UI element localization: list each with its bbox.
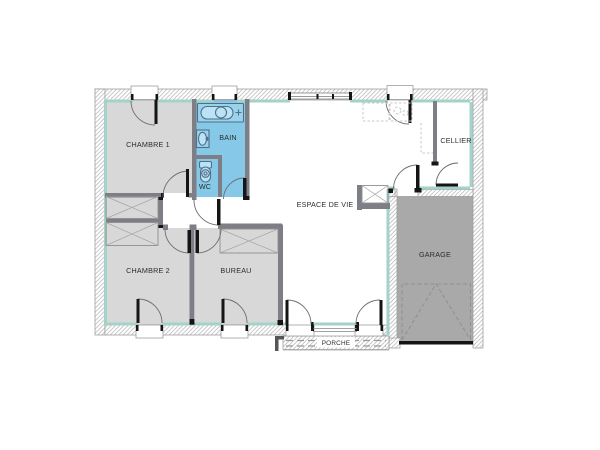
- window-chambre2: [136, 325, 163, 338]
- label-bain: BAIN: [219, 133, 237, 142]
- wall-garage-top: [418, 190, 473, 197]
- wall-wc-top: [192, 155, 222, 159]
- floor-plan-canvas: CHAMBRE 1 BAIN WC ESPACE DE VIE CELLIER …: [0, 0, 600, 450]
- toilet-icon: [200, 162, 212, 183]
- bathtub-icon: [198, 104, 244, 123]
- label-porche: PORCHE: [322, 340, 351, 347]
- label-garage: GARAGE: [419, 250, 451, 259]
- wall-closet-divider: [106, 219, 158, 223]
- garage-door-threshold: [399, 341, 473, 345]
- hallway-floor: [163, 197, 250, 228]
- room-bureau-floor: [195, 225, 278, 325]
- wall-cellier-left: [433, 101, 437, 163]
- label-cellier: CELLIER: [440, 136, 471, 145]
- label-espace-de-vie: ESPACE DE VIE: [297, 200, 354, 209]
- wall-bureau-closet-top: [218, 224, 282, 230]
- window-bureau: [221, 325, 248, 338]
- wall-wc-right: [218, 159, 222, 197]
- label-chambre1: CHAMBRE 1: [126, 140, 170, 149]
- wall-left: [95, 89, 105, 335]
- door-porch-left-opening: [286, 325, 314, 336]
- window-bain: [212, 86, 237, 100]
- window-espace-large: [288, 92, 352, 100]
- wall-placard-bottom: [357, 203, 390, 209]
- wall-bottom-left: [105, 325, 287, 335]
- door-porch-right-opening: [355, 325, 383, 336]
- wall-garage-bottom-stub: [389, 338, 400, 348]
- window-chambre1: [131, 86, 158, 100]
- label-bureau: BUREAU: [220, 266, 251, 275]
- sink-icon: [197, 130, 210, 148]
- door-service-opening: [387, 86, 413, 101]
- wall-right: [473, 89, 483, 348]
- porch-window-sill: [313, 323, 357, 326]
- wall-hallway-left: [158, 197, 163, 228]
- floor-plan-drawing: CHAMBRE 1 BAIN WC ESPACE DE VIE CELLIER …: [0, 0, 600, 450]
- wall-garage-left: [389, 189, 397, 339]
- label-wc: WC: [199, 182, 211, 191]
- room-garage-floor: [397, 196, 473, 342]
- wall-bain-left: [192, 99, 197, 200]
- wall-bureau-right: [278, 225, 283, 326]
- label-chambre2: CHAMBRE 2: [126, 266, 170, 275]
